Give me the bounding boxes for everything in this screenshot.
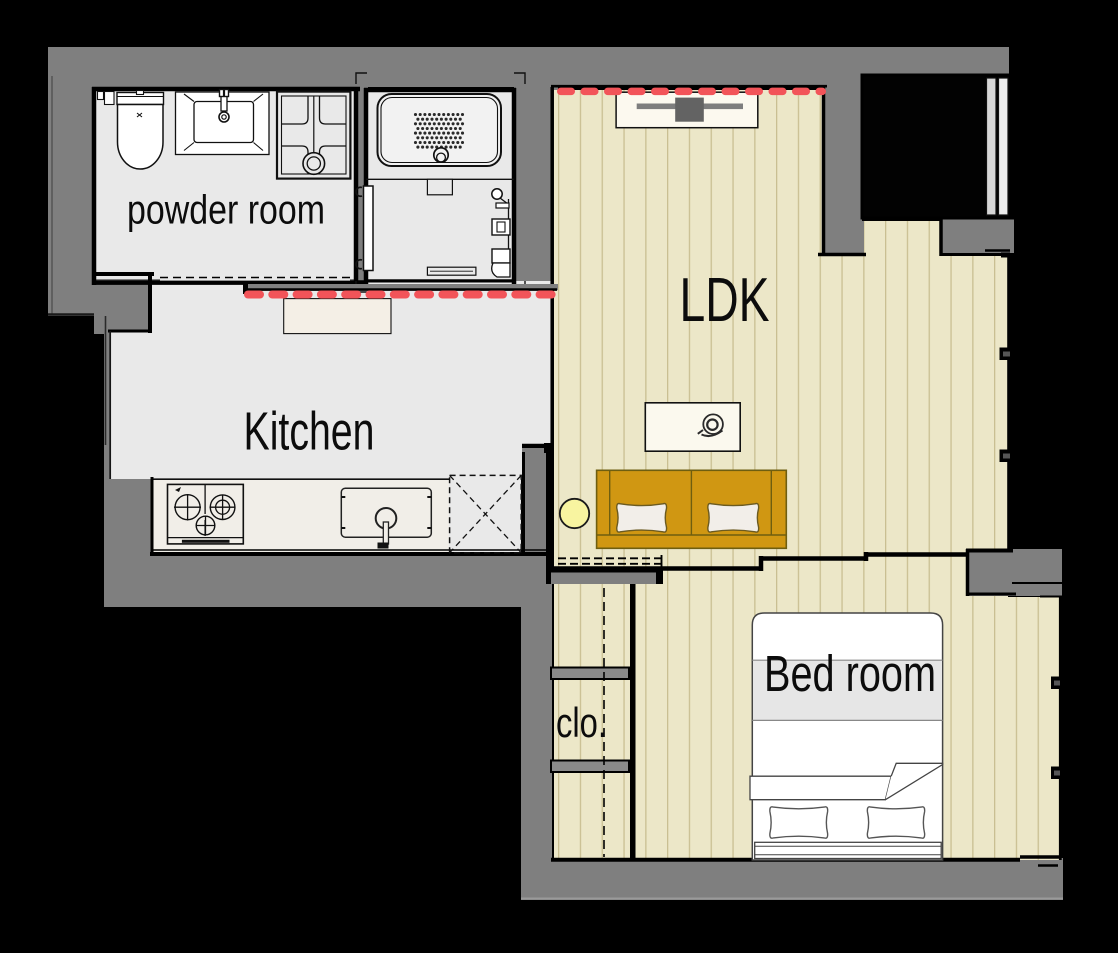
- svg-text:Bed room: Bed room: [764, 645, 936, 702]
- svg-text:powder room: powder room: [127, 187, 325, 233]
- svg-text:clo.: clo.: [556, 699, 607, 746]
- svg-text:LDK: LDK: [680, 266, 770, 335]
- svg-text:Kitchen: Kitchen: [244, 402, 375, 462]
